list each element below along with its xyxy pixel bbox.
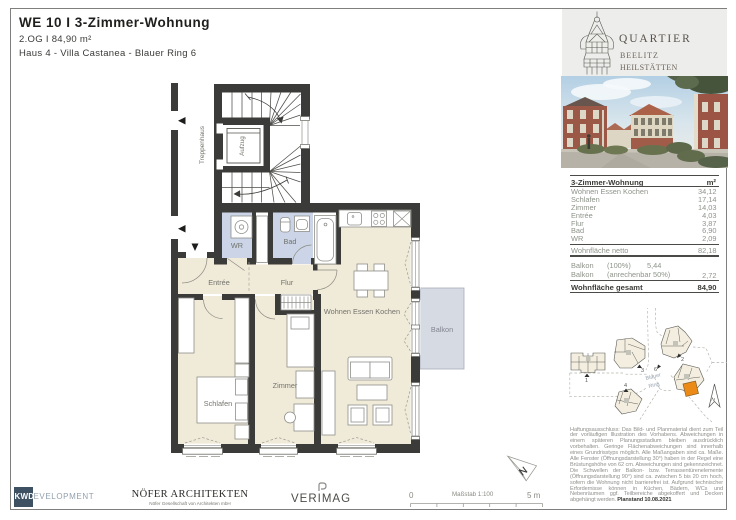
svg-text:4: 4 bbox=[624, 383, 627, 389]
svg-text:Zimmer: Zimmer bbox=[273, 381, 298, 390]
svg-text:Balkon: Balkon bbox=[431, 325, 453, 334]
svg-text:WR: WR bbox=[231, 241, 243, 250]
svg-text:Aufzug: Aufzug bbox=[239, 136, 246, 156]
svg-text:Maßstab 1:100: Maßstab 1:100 bbox=[452, 491, 494, 498]
svg-text:5 m: 5 m bbox=[527, 491, 541, 500]
svg-text:Treppenhaus: Treppenhaus bbox=[199, 125, 206, 164]
svg-text:0: 0 bbox=[409, 491, 414, 500]
svg-text:Wohnen Essen Kochen: Wohnen Essen Kochen bbox=[324, 307, 400, 316]
svg-text:3: 3 bbox=[641, 368, 644, 374]
svg-text:Blauer: Blauer bbox=[645, 372, 662, 382]
svg-text:2: 2 bbox=[681, 357, 684, 363]
svg-text:6: 6 bbox=[654, 367, 657, 373]
svg-text:Bad: Bad bbox=[284, 237, 297, 246]
svg-text:Ring: Ring bbox=[648, 381, 660, 390]
svg-text:Schlafen: Schlafen bbox=[204, 399, 232, 408]
svg-text:1: 1 bbox=[585, 378, 588, 384]
svg-text:Flur: Flur bbox=[281, 278, 294, 287]
svg-text:Entrée: Entrée bbox=[208, 278, 230, 287]
